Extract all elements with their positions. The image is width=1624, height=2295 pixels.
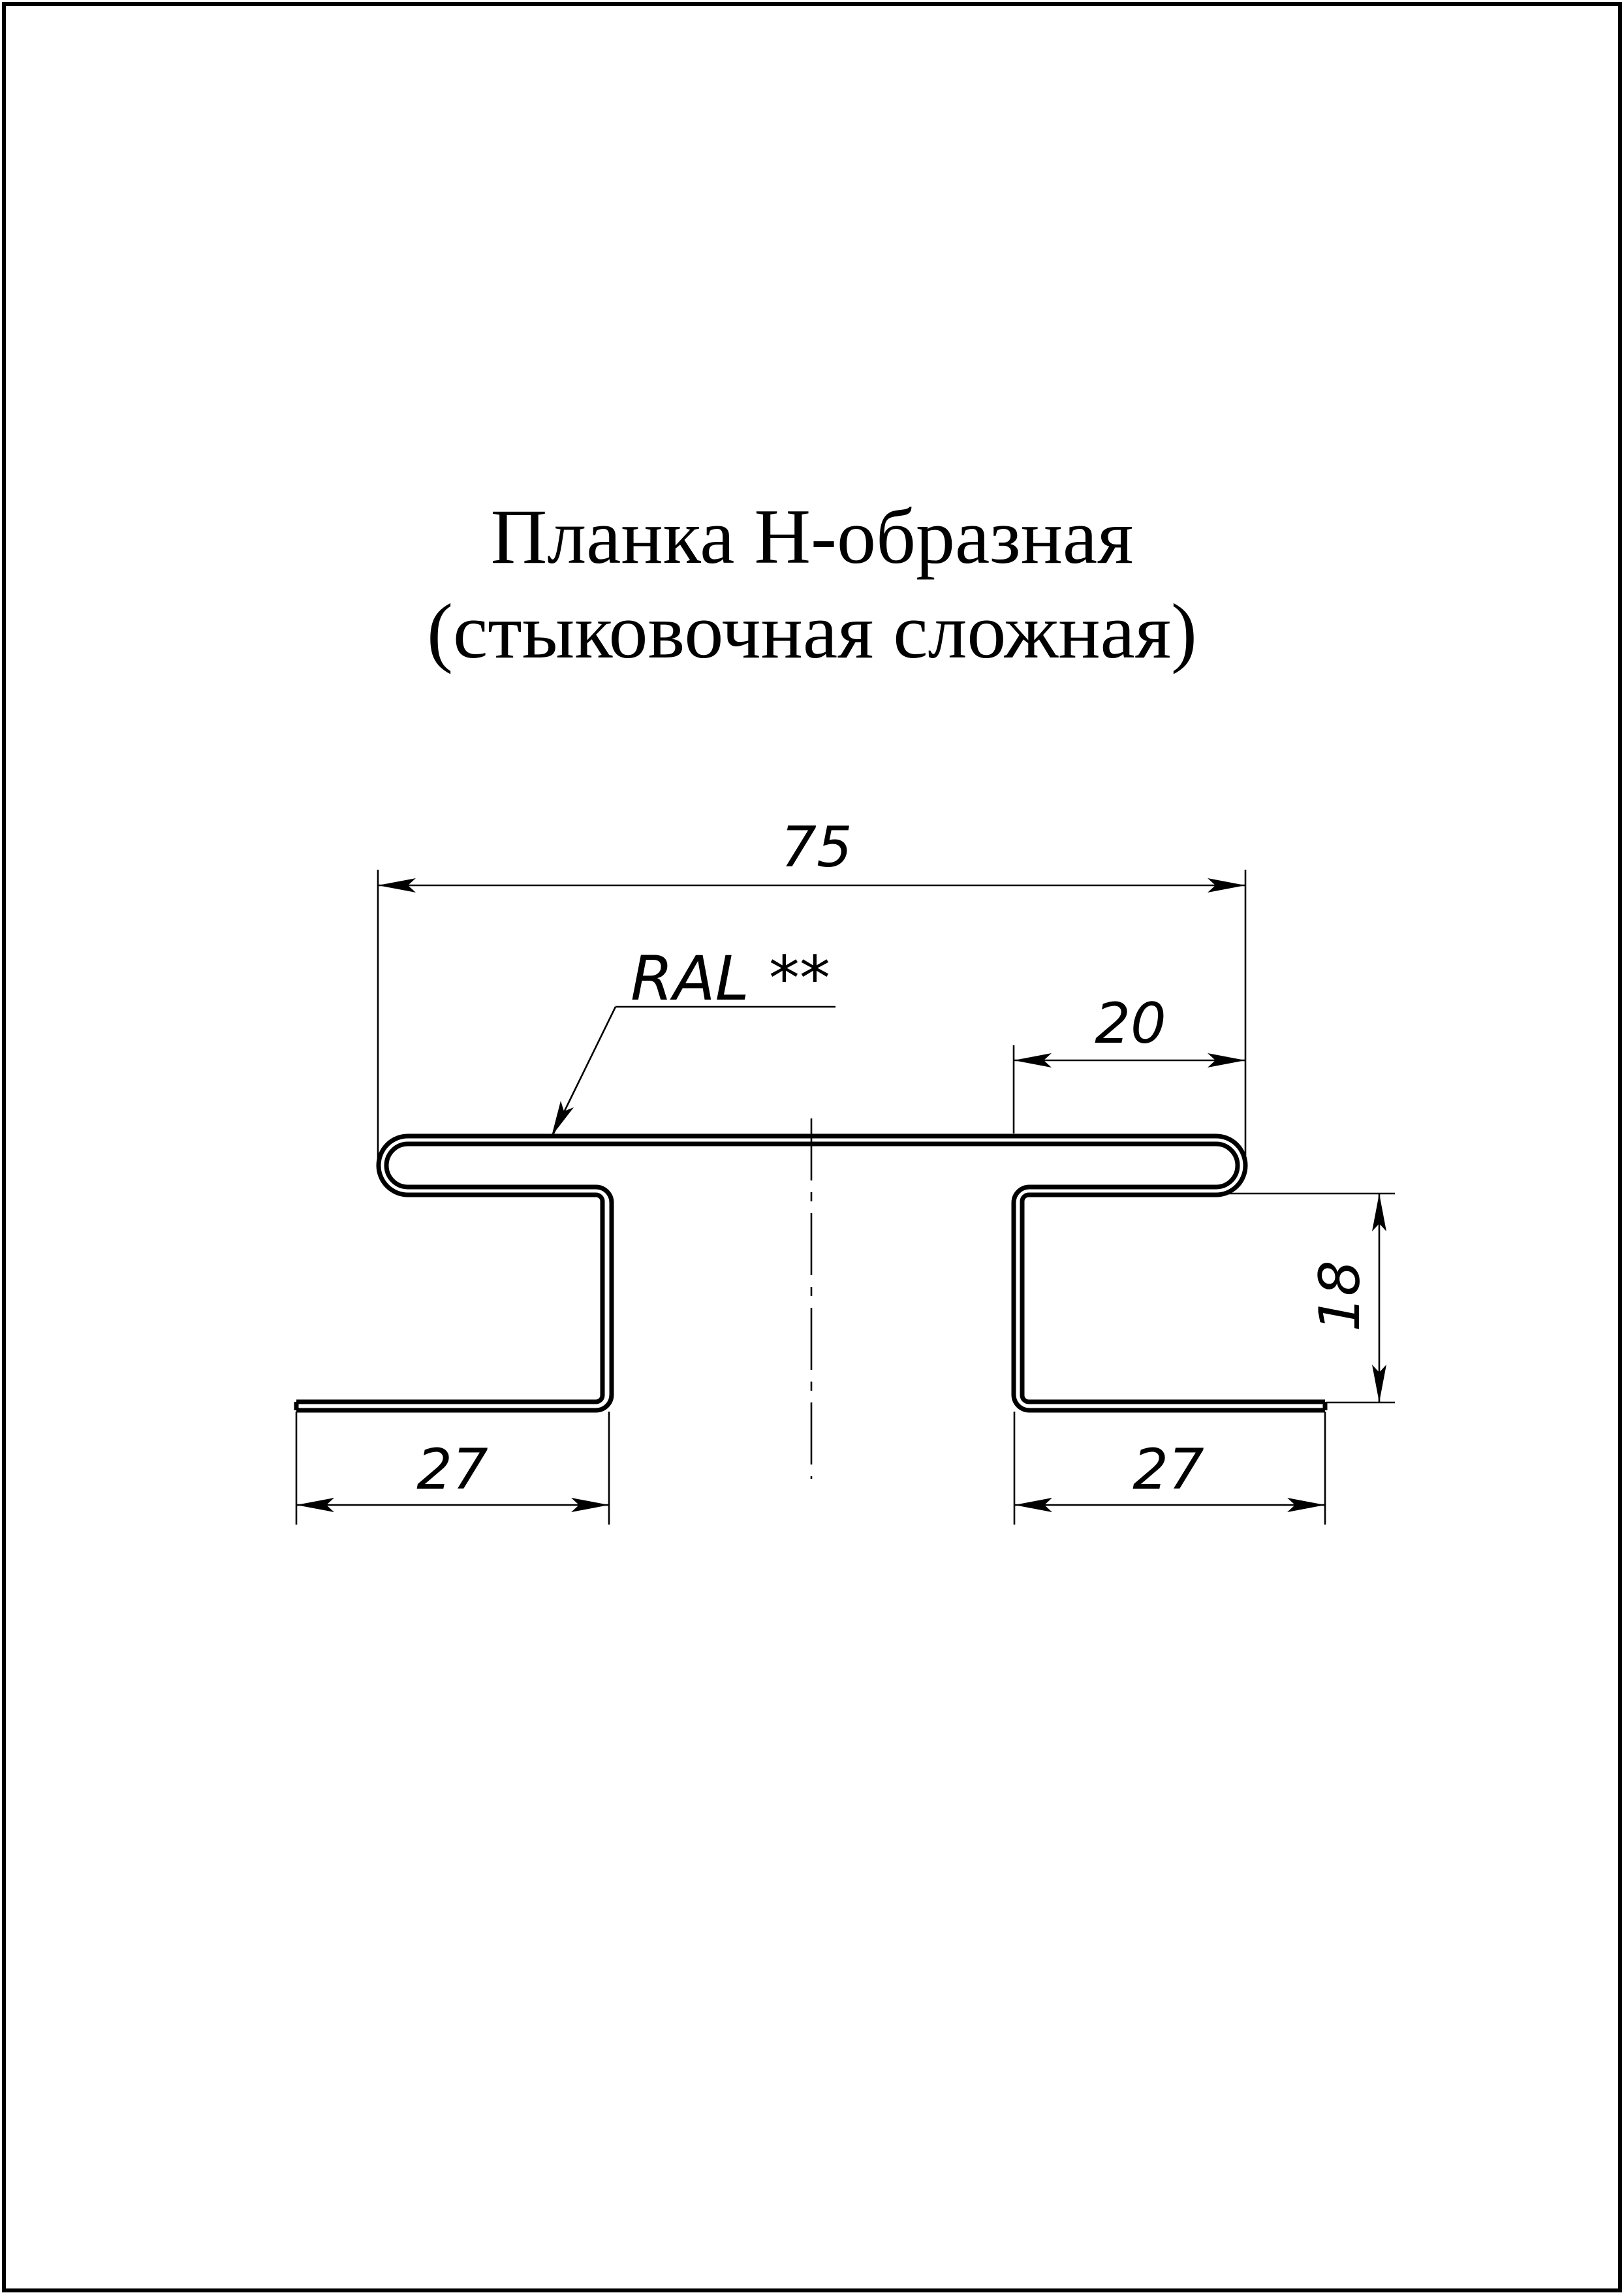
ral-leader-arrow xyxy=(552,1101,574,1136)
dim-18-value: 18 xyxy=(1307,1260,1373,1331)
dim-20-value: 20 xyxy=(1095,991,1166,1056)
title-line-2: (стыковочная сложная) xyxy=(427,588,1197,674)
dim-75-value: 75 xyxy=(781,815,852,880)
dim-left-flange: 27 xyxy=(296,1412,609,1525)
profile-contour-inner xyxy=(296,1144,1325,1410)
dim-right-flange: 27 xyxy=(1014,1412,1325,1525)
title-line-1: Планка Н-образная xyxy=(491,493,1134,580)
dim-right-top-offset: 20 xyxy=(1014,991,1245,1133)
ral-label: RAL ** xyxy=(631,943,830,1015)
technical-drawing: Планка Н-образная (стыковочная сложная) … xyxy=(0,0,1624,2295)
dim-27r-value: 27 xyxy=(1132,1437,1204,1502)
drawing-title: Планка Н-образная (стыковочная сложная) xyxy=(427,493,1197,674)
dim-side-height: 18 xyxy=(1225,1194,1395,1402)
ral-callout: RAL ** xyxy=(552,943,835,1136)
dim-27l-value: 27 xyxy=(416,1437,488,1502)
drawing-sheet: Планка Н-образная (стыковочная сложная) … xyxy=(0,0,1624,2295)
